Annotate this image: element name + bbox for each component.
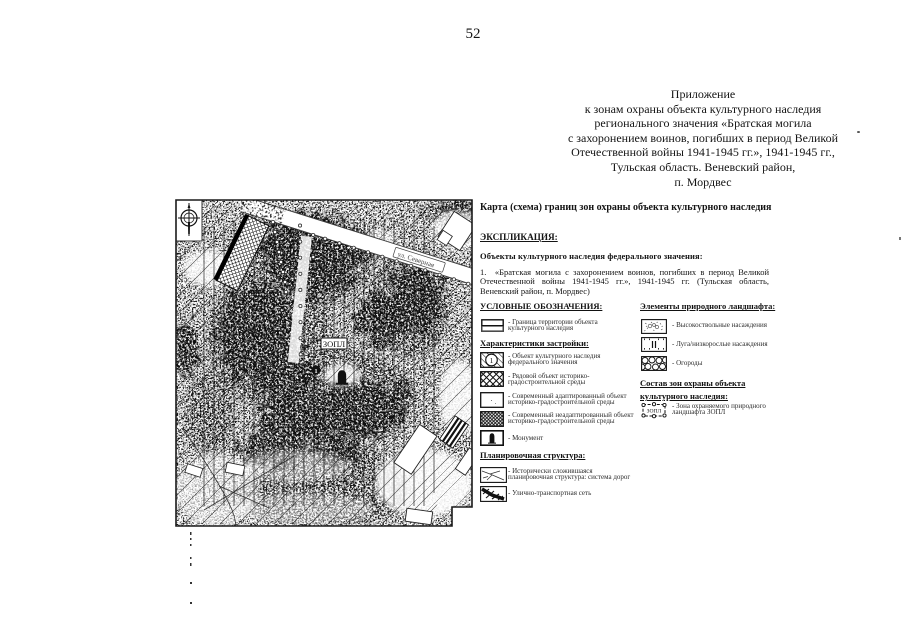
svg-text:ЗОПЛ: ЗОПЛ [323,339,346,349]
svg-text:1: 1 [490,355,494,364]
svg-text:ЗОПЛ: ЗОПЛ [647,408,662,414]
svg-text:1: 1 [314,368,317,375]
